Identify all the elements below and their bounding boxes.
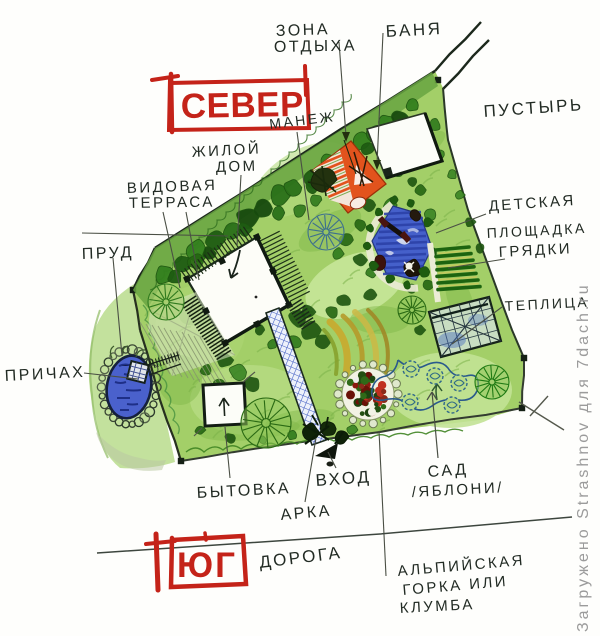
svg-text:Загружено Strashnov для 7dach.: Загружено Strashnov для 7dach.ru [575,282,592,632]
svg-text:ТЕРРАСА: ТЕРРАСА [129,194,215,212]
svg-text:ПРУД: ПРУД [82,244,135,263]
svg-text:ОТДЫХА: ОТДЫХА [274,38,357,56]
svg-text:ЮГ: ЮГ [177,546,237,585]
svg-text:САД: САД [427,461,469,481]
svg-text:ЗОНА: ЗОНА [276,21,331,40]
svg-text:БАНЯ: БАНЯ [385,19,443,41]
svg-text:ВХОД: ВХОД [315,467,372,490]
svg-text:ДОМ: ДОМ [216,158,258,176]
